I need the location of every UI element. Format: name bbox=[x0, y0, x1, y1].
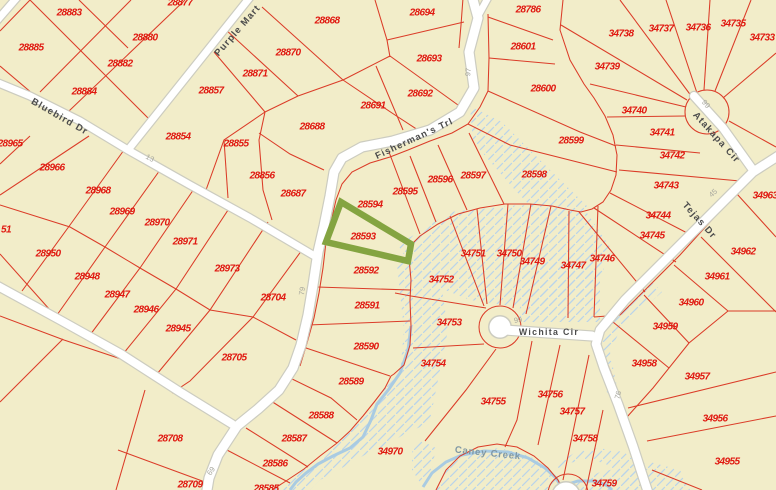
svg-text:28588: 28588 bbox=[308, 411, 335, 422]
svg-text:28970: 28970 bbox=[144, 218, 171, 229]
svg-text:34957: 34957 bbox=[685, 372, 711, 383]
svg-text:79: 79 bbox=[297, 286, 307, 296]
svg-text:28857: 28857 bbox=[198, 86, 225, 97]
svg-text:28691: 28691 bbox=[360, 101, 387, 112]
svg-text:28871: 28871 bbox=[242, 69, 269, 80]
svg-text:34737: 34737 bbox=[649, 24, 675, 35]
svg-text:28973: 28973 bbox=[214, 264, 241, 275]
svg-text:28883: 28883 bbox=[56, 8, 83, 19]
svg-text:28591: 28591 bbox=[354, 301, 381, 312]
svg-text:28856: 28856 bbox=[249, 171, 276, 182]
svg-text:28880: 28880 bbox=[132, 33, 159, 44]
svg-text:28600: 28600 bbox=[530, 84, 557, 95]
svg-text:Wichita Cir: Wichita Cir bbox=[519, 327, 579, 337]
svg-text:28709: 28709 bbox=[177, 480, 204, 490]
svg-text:28598: 28598 bbox=[521, 170, 548, 181]
svg-text:34743: 34743 bbox=[654, 181, 680, 192]
svg-text:28965: 28965 bbox=[0, 139, 23, 150]
svg-text:34955: 34955 bbox=[715, 457, 741, 468]
svg-text:34963: 34963 bbox=[753, 191, 776, 202]
svg-text:28855: 28855 bbox=[223, 139, 250, 150]
svg-text:34745: 34745 bbox=[640, 231, 666, 242]
svg-text:34970: 34970 bbox=[378, 447, 404, 458]
svg-text:28704: 28704 bbox=[260, 293, 287, 304]
svg-text:28877: 28877 bbox=[167, 0, 194, 9]
svg-text:28971: 28971 bbox=[172, 237, 199, 248]
svg-text:34751: 34751 bbox=[461, 249, 487, 260]
svg-text:34739: 34739 bbox=[595, 62, 621, 73]
svg-text:34960: 34960 bbox=[679, 298, 705, 309]
svg-text:34756: 34756 bbox=[538, 390, 564, 401]
svg-text:28585: 28585 bbox=[253, 484, 280, 490]
svg-text:28688: 28688 bbox=[299, 122, 326, 133]
svg-text:28882: 28882 bbox=[107, 59, 134, 70]
svg-text:28885: 28885 bbox=[18, 43, 45, 54]
svg-text:28597: 28597 bbox=[460, 171, 487, 182]
svg-text:34749: 34749 bbox=[520, 257, 546, 268]
svg-text:34735: 34735 bbox=[721, 19, 747, 30]
svg-text:28593: 28593 bbox=[350, 232, 377, 243]
svg-text:28705: 28705 bbox=[221, 353, 248, 364]
svg-text:34740: 34740 bbox=[622, 106, 648, 117]
svg-text:28868: 28868 bbox=[314, 16, 341, 27]
svg-text:34959: 34959 bbox=[653, 322, 679, 333]
svg-text:28870: 28870 bbox=[275, 48, 302, 59]
svg-text:34738: 34738 bbox=[609, 29, 635, 40]
svg-text:34742: 34742 bbox=[660, 151, 686, 162]
svg-text:28708: 28708 bbox=[157, 434, 184, 445]
svg-text:28946: 28946 bbox=[133, 305, 160, 316]
svg-text:34758: 34758 bbox=[573, 434, 599, 445]
svg-text:34747: 34747 bbox=[561, 261, 587, 272]
svg-text:34755: 34755 bbox=[481, 397, 507, 408]
svg-text:28601: 28601 bbox=[510, 42, 537, 53]
svg-text:28945: 28945 bbox=[165, 324, 192, 335]
svg-text:28966: 28966 bbox=[39, 163, 66, 174]
svg-text:28599: 28599 bbox=[558, 136, 585, 147]
svg-text:34962: 34962 bbox=[731, 247, 757, 258]
svg-text:28969: 28969 bbox=[109, 207, 136, 218]
svg-text:28692: 28692 bbox=[407, 89, 434, 100]
svg-text:34757: 34757 bbox=[560, 407, 586, 418]
svg-text:28854: 28854 bbox=[165, 132, 192, 143]
svg-text:34958: 34958 bbox=[632, 359, 658, 370]
svg-text:34744: 34744 bbox=[646, 211, 672, 222]
svg-text:28786: 28786 bbox=[515, 5, 542, 16]
svg-text:99: 99 bbox=[513, 315, 523, 325]
svg-text:34754: 34754 bbox=[421, 359, 447, 370]
svg-text:34746: 34746 bbox=[590, 254, 616, 265]
svg-text:34753: 34753 bbox=[437, 318, 463, 329]
svg-text:28947: 28947 bbox=[104, 290, 131, 301]
svg-text:28594: 28594 bbox=[357, 200, 384, 211]
svg-text:28968: 28968 bbox=[85, 186, 112, 197]
svg-text:28592: 28592 bbox=[353, 266, 380, 277]
svg-text:34741: 34741 bbox=[650, 128, 676, 139]
svg-text:28950: 28950 bbox=[35, 249, 62, 260]
svg-text:28948: 28948 bbox=[74, 272, 101, 283]
svg-text:97: 97 bbox=[463, 67, 473, 76]
svg-text:51: 51 bbox=[1, 225, 12, 236]
svg-text:34961: 34961 bbox=[705, 272, 731, 283]
svg-text:28693: 28693 bbox=[416, 54, 443, 65]
svg-text:34759: 34759 bbox=[592, 479, 618, 490]
svg-text:28587: 28587 bbox=[281, 434, 308, 445]
svg-text:34752: 34752 bbox=[429, 275, 455, 286]
svg-text:28596: 28596 bbox=[427, 175, 454, 186]
svg-text:34956: 34956 bbox=[703, 414, 729, 425]
svg-text:28590: 28590 bbox=[353, 342, 380, 353]
svg-text:28586: 28586 bbox=[262, 459, 289, 470]
svg-text:28595: 28595 bbox=[392, 187, 419, 198]
svg-text:28589: 28589 bbox=[338, 377, 365, 388]
svg-text:28694: 28694 bbox=[409, 8, 436, 19]
svg-text:34750: 34750 bbox=[497, 249, 523, 260]
svg-text:28687: 28687 bbox=[280, 189, 307, 200]
svg-text:28884: 28884 bbox=[71, 87, 98, 98]
svg-text:34736: 34736 bbox=[686, 23, 712, 34]
svg-text:34733: 34733 bbox=[750, 33, 776, 44]
